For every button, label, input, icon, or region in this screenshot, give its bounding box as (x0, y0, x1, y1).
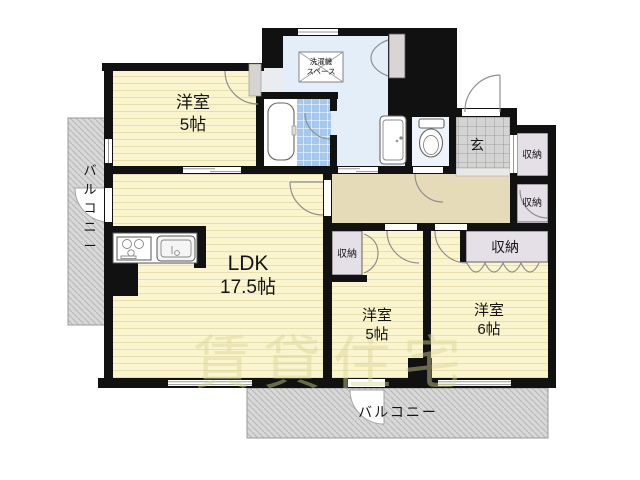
closet-hall-lower-label: 収納 (522, 196, 542, 209)
entrance-label: 玄 (470, 137, 484, 153)
bedroom-top-left-name: 洋室 (176, 93, 210, 112)
bedroom-top-left-size: 5帖 (180, 115, 206, 134)
bedroom-right-size: 6帖 (477, 321, 500, 338)
watermark-text: 賃貸住宅 (193, 331, 473, 396)
bathtub-icon (268, 103, 294, 160)
bedroom-top-door-leaf (249, 64, 261, 96)
closet-bedroom-right-label: 収納 (491, 239, 519, 255)
shaft-duct (389, 34, 405, 78)
closet-bedroom-middle-label: 収納 (337, 247, 357, 260)
stove-icon (117, 237, 151, 260)
floorplan: 賃貸住宅 洋室 5帖 LDK 17.5帖 洋室 5帖 洋室 6帖 収納 収納 収… (0, 0, 640, 480)
bedroom-middle-name: 洋室 (362, 307, 392, 324)
bedroom-right-name: 洋室 (474, 302, 504, 319)
ldk-name: LDK (228, 252, 269, 275)
balcony-left-label: バルコニー (83, 163, 96, 253)
closet-hall-upper-label: 収納 (522, 148, 542, 161)
kitchen (113, 233, 197, 263)
ldk-size: 17.5帖 (220, 276, 276, 298)
hallway (332, 174, 511, 223)
washer-space-label-1: 洗濯機 (310, 56, 333, 66)
entrance-step (456, 168, 510, 176)
bathroom (264, 99, 331, 166)
balcony-bottom-label: バルコニー (358, 404, 438, 420)
toilet-icon (419, 119, 444, 157)
washbasin-icon (380, 116, 406, 164)
washer-space-label-2: スペース (306, 67, 335, 76)
floorplan-drawing: 賃貸住宅 洋室 5帖 LDK 17.5帖 洋室 5帖 洋室 6帖 収納 収納 収… (0, 0, 640, 480)
bedroom-middle-size: 5帖 (365, 326, 388, 343)
kitchen-sink-icon (157, 236, 195, 261)
